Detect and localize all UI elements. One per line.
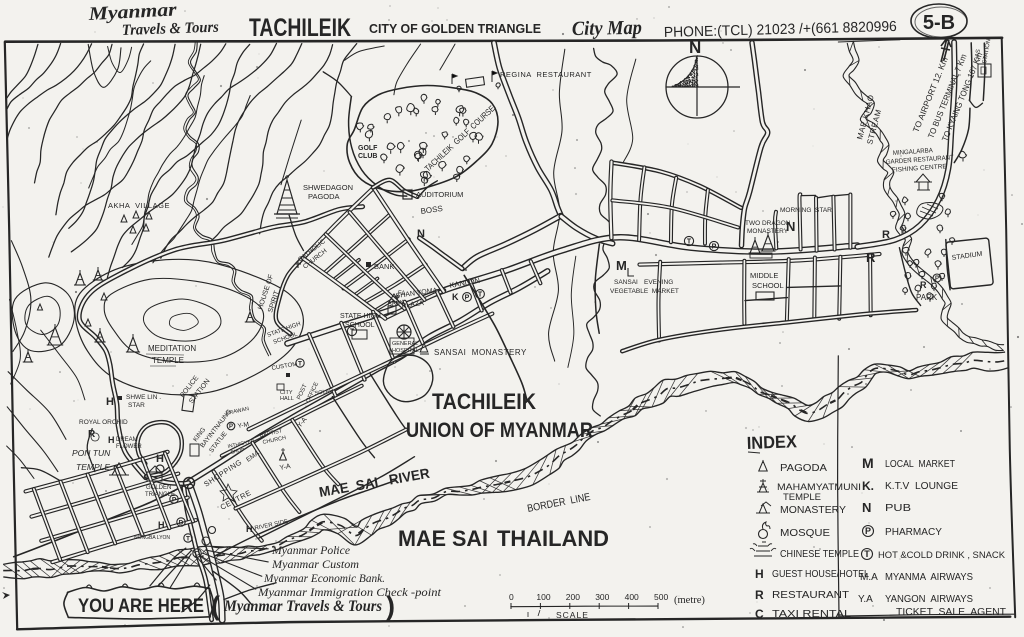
svg-text:300: 300 — [595, 592, 609, 602]
svg-text:Y.A: Y.A — [858, 594, 873, 605]
svg-text:SANSAI: SANSAI — [614, 279, 638, 286]
svg-text:GUEST HOUSE/HOTEL: GUEST HOUSE/HOTEL — [772, 569, 869, 580]
svg-text:200: 200 — [566, 592, 580, 602]
svg-text:Travels & Tours: Travels & Tours — [122, 19, 220, 39]
svg-text:K.T.V LOUNGE: K.T.V LOUNGE — [885, 481, 958, 492]
svg-text:AUDITORIUM: AUDITORIUM — [416, 190, 463, 199]
svg-text:PAGODA: PAGODA — [780, 463, 827, 474]
svg-text:): ) — [386, 591, 395, 621]
svg-text:H: H — [158, 520, 165, 530]
svg-text:T: T — [186, 535, 190, 542]
svg-text:T: T — [350, 329, 355, 336]
svg-text:UNION OF MYANMAR: UNION OF MYANMAR — [406, 419, 593, 442]
svg-text:N: N — [689, 38, 701, 57]
svg-text:H: H — [108, 435, 115, 445]
svg-text:M: M — [862, 455, 874, 471]
svg-text:R: R — [882, 229, 890, 241]
svg-text:TEMPLE: TEMPLE — [76, 462, 110, 472]
svg-text:M: M — [616, 258, 627, 273]
svg-text:D: D — [179, 519, 184, 526]
svg-text:(: ( — [211, 591, 220, 621]
svg-text:HOSPITAL: HOSPITAL — [392, 348, 419, 354]
svg-text:YOU ARE HERE: YOU ARE HERE — [78, 596, 204, 617]
svg-text:RESTAURANT: RESTAURANT — [772, 590, 849, 601]
svg-text:STAR: STAR — [128, 402, 145, 409]
svg-text:N: N — [417, 228, 425, 240]
svg-text:H: H — [106, 396, 114, 408]
svg-text:100: 100 — [536, 592, 550, 602]
svg-text:DREAM: DREAM — [116, 437, 138, 443]
svg-text:0: 0 — [509, 592, 514, 602]
svg-text:T: T — [864, 549, 870, 559]
svg-text:MAHAMYATMUNI: MAHAMYATMUNI — [777, 482, 861, 492]
svg-text:HOT &COLD DRINK , SNACK: HOT &COLD DRINK , SNACK — [878, 550, 1005, 560]
svg-text:SCALE: SCALE — [556, 610, 589, 620]
svg-text:M.A: M.A — [860, 572, 878, 583]
svg-text:MAE SAI: MAE SAI — [398, 526, 488, 551]
svg-text:C: C — [755, 607, 764, 621]
svg-text:GOLDEN: GOLDEN — [146, 485, 171, 491]
svg-text:SHWE LIN .: SHWE LIN . — [126, 394, 161, 401]
svg-text:City Map: City Map — [572, 17, 642, 40]
svg-text:P: P — [935, 276, 939, 282]
svg-text:H: H — [156, 453, 164, 465]
svg-text:THAILAND: THAILAND — [497, 526, 609, 551]
svg-text:P: P — [712, 244, 717, 251]
svg-text:PUB: PUB — [885, 503, 911, 514]
svg-text:Myanmar Custom: Myanmar Custom — [271, 557, 359, 571]
svg-text:R: R — [866, 250, 876, 265]
svg-text:PARK: PARK — [916, 293, 938, 302]
svg-text:BANK: BANK — [374, 262, 394, 271]
svg-text:PHARMACY: PHARMACY — [885, 527, 942, 538]
svg-text:R: R — [755, 588, 764, 602]
svg-text:N: N — [786, 219, 795, 234]
svg-text:AKHA VILLAGE: AKHA VILLAGE — [108, 201, 170, 210]
svg-text:TWO DRAGON: TWO DRAGON — [745, 220, 791, 227]
svg-text:TEMPLE: TEMPLE — [152, 356, 184, 365]
svg-text:STATE HIGH: STATE HIGH — [340, 313, 381, 320]
svg-text:SHWEDAGON: SHWEDAGON — [303, 183, 353, 192]
svg-text:5-B: 5-B — [923, 12, 955, 34]
svg-text:T: T — [298, 360, 302, 367]
svg-text:K: K — [452, 292, 459, 302]
svg-text:PON TUN: PON TUN — [72, 448, 111, 458]
svg-text:VEGETABLE MARKET: VEGETABLE MARKET — [610, 288, 679, 295]
svg-text:(metre): (metre) — [674, 595, 705, 606]
svg-text:GOLF: GOLF — [358, 145, 378, 152]
svg-text:CHINESE TEMPLE: CHINESE TEMPLE — [780, 549, 859, 560]
svg-text:Myanmar Immigration Check -poi: Myanmar Immigration Check -point — [257, 585, 442, 599]
svg-text:SCHOOL: SCHOOL — [752, 281, 784, 290]
svg-text:K.: K. — [862, 479, 874, 493]
svg-text:Myanmar Police: Myanmar Police — [271, 543, 351, 557]
svg-text:FLOWER: FLOWER — [116, 444, 142, 450]
svg-text:400: 400 — [625, 592, 639, 602]
svg-text:T: T — [687, 239, 692, 246]
svg-text:MORNING STAR: MORNING STAR — [780, 207, 832, 214]
svg-text:EVENING: EVENING — [644, 279, 673, 286]
svg-text:P: P — [465, 295, 470, 302]
svg-text:TEMPLE: TEMPLE — [783, 492, 821, 502]
svg-text:MYANMA AIRWAYS: MYANMA AIRWAYS — [885, 572, 973, 583]
svg-text:TAXI RENTAL: TAXI RENTAL — [772, 609, 852, 620]
svg-text:MEDITATION: MEDITATION — [148, 344, 196, 353]
svg-text:P: P — [229, 424, 233, 430]
svg-text:CITY OF GOLDEN TRIANGLE: CITY OF GOLDEN TRIANGLE — [369, 22, 541, 36]
svg-text:YANGON AIRWAYS: YANGON AIRWAYS — [885, 594, 973, 605]
svg-text:SANSAI MONASTERY: SANSAI MONASTERY — [434, 348, 527, 357]
svg-text:MOSQUE: MOSQUE — [780, 528, 830, 539]
svg-text:MONASTERY: MONASTERY — [780, 505, 846, 516]
svg-text:ROYAL ORCHID: ROYAL ORCHID — [79, 419, 128, 426]
svg-text:P: P — [865, 526, 871, 536]
svg-text:C: C — [195, 550, 200, 557]
svg-text:H: H — [246, 524, 253, 534]
svg-text:TACHILEIK: TACHILEIK — [432, 389, 536, 414]
svg-text:500: 500 — [654, 592, 668, 602]
svg-text:P: P — [172, 496, 177, 503]
svg-text:HALL: HALL — [280, 396, 294, 402]
svg-text:N: N — [862, 500, 871, 515]
svg-text:TICKET SALE AGENT: TICKET SALE AGENT — [896, 607, 1006, 618]
svg-text:FA: FA — [398, 291, 405, 297]
svg-text:T: T — [478, 292, 483, 299]
svg-text:R: R — [920, 280, 927, 290]
svg-text:PAGODA: PAGODA — [308, 192, 340, 201]
svg-text:CLUB: CLUB — [358, 153, 377, 160]
svg-text:INDEX: INDEX — [746, 431, 797, 453]
svg-text:TACHILEIK: TACHILEIK — [249, 14, 351, 42]
svg-text:LOCAL MARKET: LOCAL MARKET — [885, 459, 955, 470]
svg-text:MIDDLE: MIDDLE — [750, 271, 778, 280]
svg-text:NONGBA LYON: NONGBA LYON — [134, 535, 170, 541]
svg-text:Myanmar Travels & Tours: Myanmar Travels & Tours — [223, 598, 382, 615]
svg-text:REGINA RESTAURANT: REGINA RESTAURANT — [500, 70, 592, 79]
svg-text:Myanmar Economic Bank.: Myanmar Economic Bank. — [263, 571, 385, 585]
svg-text:H: H — [755, 567, 764, 581]
